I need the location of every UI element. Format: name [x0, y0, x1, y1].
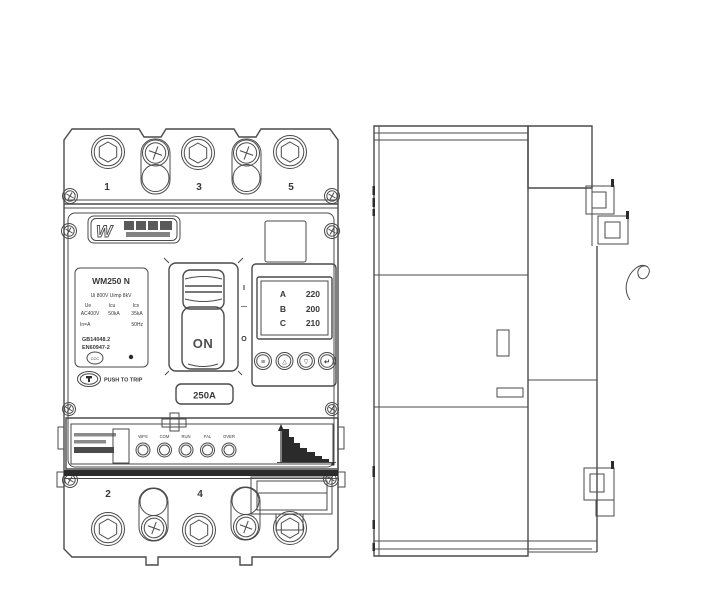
position-mark-off: O [241, 336, 247, 343]
side-terminal-clamp-upper [586, 179, 614, 214]
phase-a-label: A [280, 289, 286, 299]
phase-a-value: 220 [306, 289, 320, 299]
led-icon [222, 443, 236, 457]
enter-button: ↵ [319, 353, 336, 370]
ccc-mark-icon: CCC [87, 352, 103, 364]
led-icon [136, 443, 150, 457]
hex-bolt-terminal-3 [182, 137, 215, 170]
led-label-run: RUN [181, 434, 190, 439]
status-leds: WPS COM RUN FAL OVER [136, 434, 236, 457]
side-body [374, 126, 528, 556]
handle-grip [183, 270, 224, 309]
screw-icon [60, 186, 80, 206]
phase-readout: A 220 B 200 C 210 [280, 289, 320, 328]
phase-b-value: 200 [306, 304, 320, 314]
menu-button: ≡ [255, 353, 272, 370]
brand-logo-plate: W [88, 216, 180, 243]
right-edge-tab [338, 427, 344, 449]
accessory-module [251, 477, 332, 530]
led-label-wps: WPS [138, 434, 148, 439]
nameplate-standard-2: EN60947-2 [82, 345, 110, 351]
nameplate-dot [129, 355, 133, 359]
keypad: ≡ △ ▽ ↵ [255, 353, 336, 370]
connector-tab [162, 413, 186, 431]
separator-band [64, 470, 338, 476]
indicator-strip: WPS COM RUN FAL OVER [66, 413, 338, 469]
handle-on-label: ON [193, 336, 214, 351]
terminal-number-2: 2 [105, 489, 111, 500]
up-button: △ [276, 353, 293, 370]
screw-icon [322, 186, 342, 206]
hex-bolt-terminal-1 [92, 136, 125, 169]
side-view [373, 126, 650, 556]
down-button: ▽ [298, 353, 315, 370]
operating-handle: ON I — O [164, 258, 247, 375]
position-mark-on: I [243, 285, 245, 292]
terminal-number-5: 5 [288, 182, 294, 193]
rating-label: 250A [176, 384, 233, 404]
nameplate-ue: Ue [85, 303, 92, 309]
model-label: WM250 N [92, 276, 130, 286]
nameplate-ue-value: AC400V [81, 311, 100, 317]
trip-curve-icon [277, 424, 336, 466]
nameplate-icu-value: 50kA [108, 311, 120, 317]
nameplate-icu: Icu [109, 303, 116, 309]
rating-value: 250A [193, 391, 216, 402]
handle-face: ON [182, 307, 224, 369]
strip-fine-print [74, 433, 116, 453]
led-label-over: OVER [223, 434, 235, 439]
brand-text [124, 221, 172, 237]
push-to-trip: PUSH TO TRIP [78, 372, 143, 387]
din-clip-detail [497, 330, 509, 356]
side-terminal-clamp-upper-2 [598, 211, 629, 244]
front-view: 1 3 5 [57, 129, 345, 565]
terminal-number-3: 3 [196, 182, 202, 193]
svg-text:CCC: CCC [91, 356, 100, 361]
enter-icon: ↵ [324, 359, 330, 366]
led-label-fal: FAL [204, 434, 212, 439]
hex-bolt-terminal-5 [274, 136, 307, 169]
trip-button-icon [86, 376, 92, 382]
led-icon [158, 443, 172, 457]
phase-b-label: B [280, 304, 286, 314]
bottom-terminals: 2 4 [92, 477, 333, 547]
down-icon: ▽ [304, 360, 309, 366]
led-label-com: COM [160, 434, 170, 439]
nameplate-hz: 50Hz [131, 322, 143, 328]
terminal-number-1: 1 [104, 182, 110, 193]
phase-c-label: C [280, 318, 286, 328]
side-back-block [528, 126, 592, 188]
spring-hook-icon [626, 266, 649, 300]
side-terminal-clamp-lower [584, 461, 614, 516]
screw-cage-terminal [139, 136, 172, 194]
led-icon [179, 443, 193, 457]
hex-bolt-terminal-2 [92, 513, 125, 546]
nameplate-ics-value: 35kA [131, 311, 143, 317]
left-edge-tab [58, 427, 64, 449]
accessory-window [265, 221, 306, 262]
hex-bolt-terminal-4 [183, 514, 216, 547]
screw-cage-terminal [230, 136, 263, 194]
nameplate-in: In=A [80, 322, 91, 328]
top-plate-band [64, 200, 338, 208]
screw-icon [322, 221, 342, 241]
screw-cage-terminal [138, 488, 170, 544]
hex-bolt-terminal-6 [274, 512, 307, 545]
technical-drawing: 1 3 5 [0, 0, 715, 607]
terminal-number-4: 4 [197, 489, 203, 500]
position-mark-trip: — [241, 304, 247, 310]
right-edge-tab [338, 472, 345, 487]
din-clip-detail [497, 388, 523, 397]
drawing-canvas: 1 3 5 [0, 0, 715, 607]
menu-icon: ≡ [261, 359, 265, 366]
display-module: A 220 B 200 C 210 ≡ △ ▽ [252, 264, 336, 386]
nameplate-standard-1: GB14048.2 [82, 337, 110, 343]
nameplate: WM250 N Ui 800V Uimp 8kV Ue Icu Ics AC40… [75, 268, 148, 367]
top-terminals: 1 3 5 [92, 136, 307, 195]
phase-c-value: 210 [306, 318, 320, 328]
led-icon [201, 443, 215, 457]
push-to-trip-label: PUSH TO TRIP [104, 378, 143, 384]
nameplate-ics: Ics [133, 303, 140, 309]
nameplate-line1: Ui 800V Uimp 8kV [91, 293, 133, 299]
screw-icon [60, 400, 78, 418]
up-icon: △ [282, 360, 287, 366]
screw-icon [59, 221, 79, 241]
brand-logo-mark: W [96, 222, 114, 241]
